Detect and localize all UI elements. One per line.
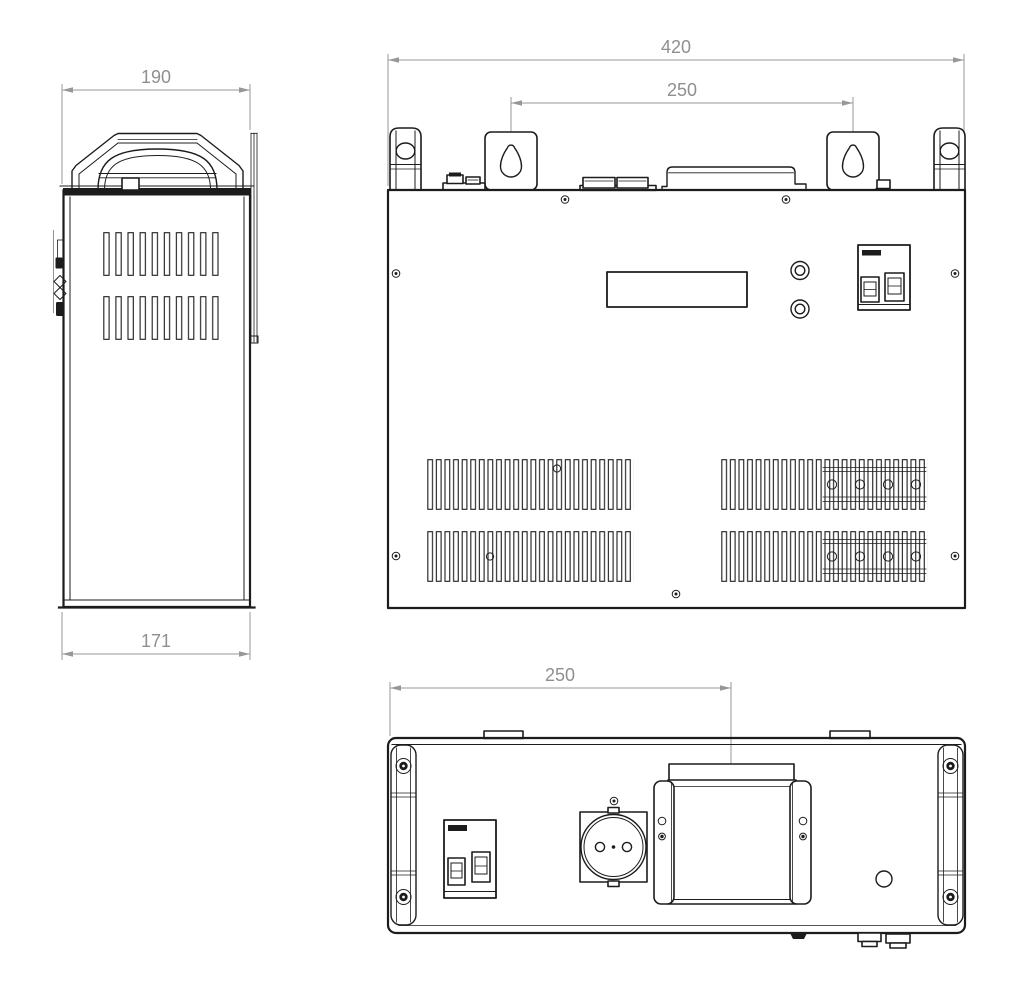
dim-label-171: 171 [141, 631, 171, 651]
carry-handle-right [934, 128, 965, 190]
handle-base-notch [122, 178, 139, 190]
circuit-breaker-bottom [444, 820, 496, 898]
keyhole-mounting-bracket-left [485, 132, 537, 190]
cable-gland [858, 933, 881, 947]
top-panel-edge [63, 188, 251, 196]
drawing-page: 190 171 [0, 0, 1024, 993]
keyhole-mounting-bracket-right [827, 132, 879, 190]
edge-button-nub [56, 258, 63, 269]
dim-label-420: 420 [661, 37, 691, 57]
terminal-box-flange-right [790, 781, 811, 904]
cable-gland [886, 934, 910, 948]
rubber-foot [790, 933, 807, 939]
terminal-box-flange-left [654, 781, 674, 904]
circuit-breaker-front [858, 245, 910, 310]
terminal-box [654, 764, 811, 904]
top-connector-pair [580, 178, 656, 191]
carry-handle-left [390, 128, 421, 190]
mounting-plate-edge [250, 133, 259, 343]
vent-grille-top-left [427, 459, 634, 510]
edge-breaker-lever [56, 302, 65, 316]
dim-label-190: 190 [141, 67, 171, 87]
dim-label-250-front: 250 [667, 80, 697, 100]
vent-grille-bottom-right [721, 531, 928, 582]
stabilizer-technical-drawing: 190 171 [0, 0, 1024, 993]
power-socket [580, 808, 647, 887]
vent-grille-bottom-left [427, 531, 634, 582]
dim-label-250-bottom: 250 [545, 665, 575, 685]
vent-grille-top-right [721, 459, 928, 510]
top-small-stud [877, 180, 890, 189]
